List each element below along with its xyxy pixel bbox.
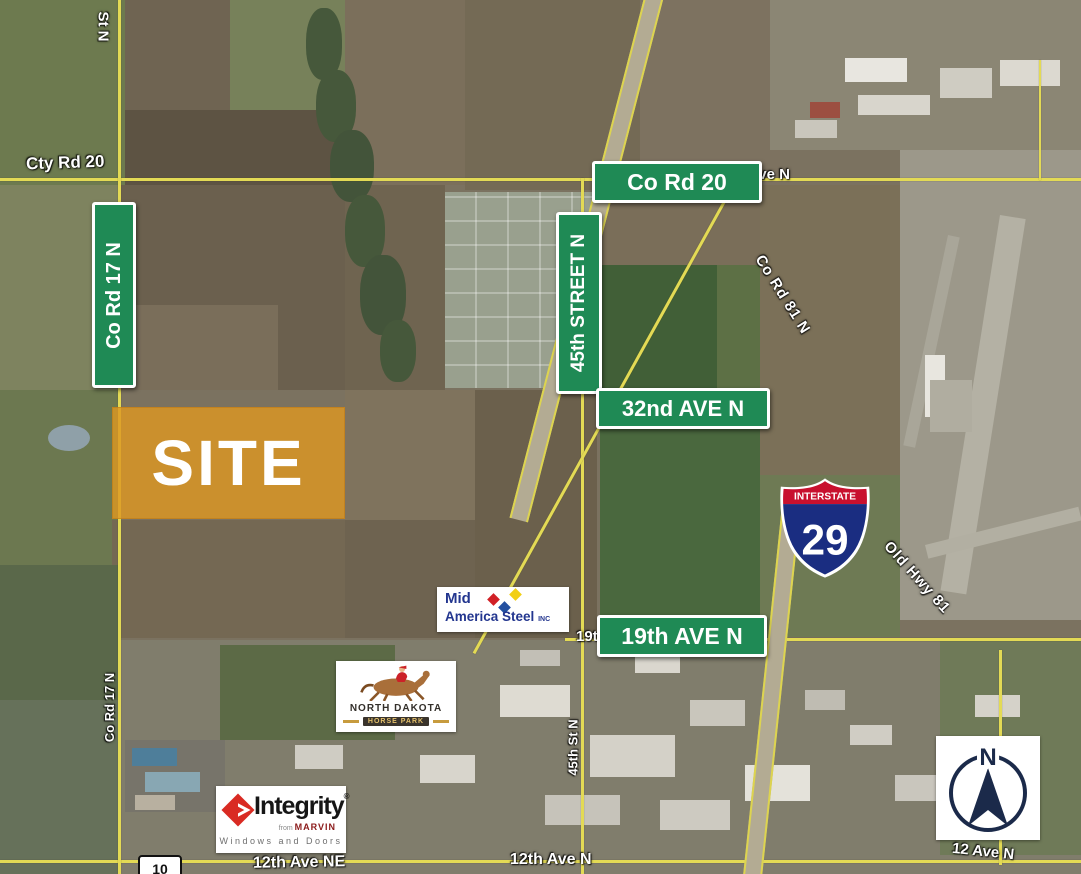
horse-park-subtitle-badge: HORSE PARK xyxy=(336,717,456,726)
badge-bar-right xyxy=(433,720,449,723)
sign-45th-street-n: 45th STREET N xyxy=(556,212,602,394)
sign-co-rd-20-label: Co Rd 20 xyxy=(627,169,727,196)
field-patch xyxy=(125,0,230,110)
steel-diamond-yellow xyxy=(509,588,522,601)
field-patch xyxy=(975,695,1020,717)
field-patch xyxy=(112,520,345,638)
integrity-reg-mark: ® xyxy=(344,792,349,801)
field-patch xyxy=(635,655,680,673)
sign-32nd-ave-n-label: 32nd AVE N xyxy=(622,396,744,422)
field-patch xyxy=(795,120,837,138)
integrity-from-text: from xyxy=(279,825,293,832)
north-compass: N xyxy=(936,736,1040,840)
field-patch xyxy=(930,380,972,432)
steel-diamond-red xyxy=(487,593,500,606)
field-patch xyxy=(760,185,905,475)
field-patch xyxy=(805,690,845,710)
road-line xyxy=(1039,60,1041,180)
field-patch xyxy=(125,110,345,185)
nd-horse-park-logo: NORTH DAKOTA HORSE PARK xyxy=(336,661,456,732)
integrity-tagline: Windows and Doors xyxy=(216,836,346,846)
field-patch xyxy=(850,725,892,745)
aerial-map: Cty Rd 20 St N Ave N Co Rd 81 N Old Hwy … xyxy=(0,0,1081,874)
integrity-from-marvin: from MARVIN xyxy=(279,822,336,832)
field-patch xyxy=(345,390,475,520)
field-patch xyxy=(590,735,675,777)
horse-park-subtitle: HORSE PARK xyxy=(363,717,429,726)
field-patch xyxy=(810,102,840,118)
route-10-label: 10 xyxy=(152,861,168,874)
interstate-shield-icon: INTERSTATE 29 xyxy=(779,477,871,579)
road-line xyxy=(0,178,1081,181)
field-patch xyxy=(520,650,560,666)
road-label-st-n: St N xyxy=(95,12,112,42)
badge-bar-left xyxy=(343,720,359,723)
field-patch xyxy=(690,700,745,726)
sign-19th-ave-n-label: 19th AVE N xyxy=(621,623,742,650)
sign-45th-street-n-label: 45th STREET N xyxy=(568,234,590,372)
north-arrow-icon: N xyxy=(936,736,1040,840)
field-patch xyxy=(135,795,175,810)
integrity-brand-text: MARVIN xyxy=(295,822,336,832)
interstate-number: 29 xyxy=(801,517,848,564)
field-patch xyxy=(600,410,760,632)
road-label-cty-rd-20: Cty Rd 20 xyxy=(26,152,105,175)
road-label-12th-ave-n: 12th Ave N xyxy=(510,851,592,869)
field-patch xyxy=(1000,60,1060,86)
mid-america-line2-text: America Steel xyxy=(445,609,534,624)
field-patch xyxy=(940,68,992,98)
field-patch xyxy=(48,425,90,451)
site-label: SITE xyxy=(151,431,305,495)
integrity-name: Integrity® xyxy=(254,792,349,821)
road-label-12th-ave-ne: 12th Ave NE xyxy=(253,853,345,873)
field-patch xyxy=(500,685,570,717)
sign-co-rd-20: Co Rd 20 xyxy=(592,161,762,203)
field-patch xyxy=(380,320,416,382)
horse-jockey-icon xyxy=(344,663,448,701)
field-patch xyxy=(118,305,278,390)
mid-america-steel-logo: Mid America Steel INC xyxy=(437,587,569,632)
mid-america-line1: Mid xyxy=(445,590,471,607)
road-label-45th-st-n-small: 45th St N xyxy=(566,719,581,775)
field-patch xyxy=(858,95,930,115)
sign-32nd-ave-n: 32nd AVE N xyxy=(596,388,770,429)
integrity-diamond-icon xyxy=(220,792,256,828)
integrity-name-text: Integrity xyxy=(254,792,344,820)
field-patch xyxy=(0,390,118,565)
compass-n-label: N xyxy=(979,744,996,771)
sign-19th-ave-n: 19th AVE N xyxy=(597,615,767,657)
sign-co-rd-17-n: Co Rd 17 N xyxy=(92,202,136,388)
interstate-29-shield: INTERSTATE 29 xyxy=(779,477,871,584)
sign-co-rd-17-n-label: Co Rd 17 N xyxy=(103,242,126,349)
site-overlay: SITE xyxy=(112,407,345,519)
horse-park-title: NORTH DAKOTA xyxy=(336,703,456,714)
interstate-text: INTERSTATE xyxy=(794,491,856,502)
field-patch xyxy=(845,58,907,82)
road-label-co-rd-17-n-small: Co Rd 17 N xyxy=(102,673,117,742)
road-label-19th-partial: 19t xyxy=(576,628,598,645)
field-patch xyxy=(330,130,374,202)
field-patch xyxy=(295,745,343,769)
field-patch xyxy=(0,700,118,874)
field-patch xyxy=(660,800,730,830)
integrity-logo: Integrity® from MARVIN Windows and Doors xyxy=(216,786,346,853)
route-10-shield: 10 xyxy=(138,855,182,874)
mid-america-line2: America Steel INC xyxy=(445,609,550,624)
mid-america-suffix: INC xyxy=(538,616,550,623)
field-patch xyxy=(640,0,780,185)
field-patch xyxy=(420,755,475,783)
field-patch xyxy=(132,748,177,766)
field-patch xyxy=(145,772,200,792)
